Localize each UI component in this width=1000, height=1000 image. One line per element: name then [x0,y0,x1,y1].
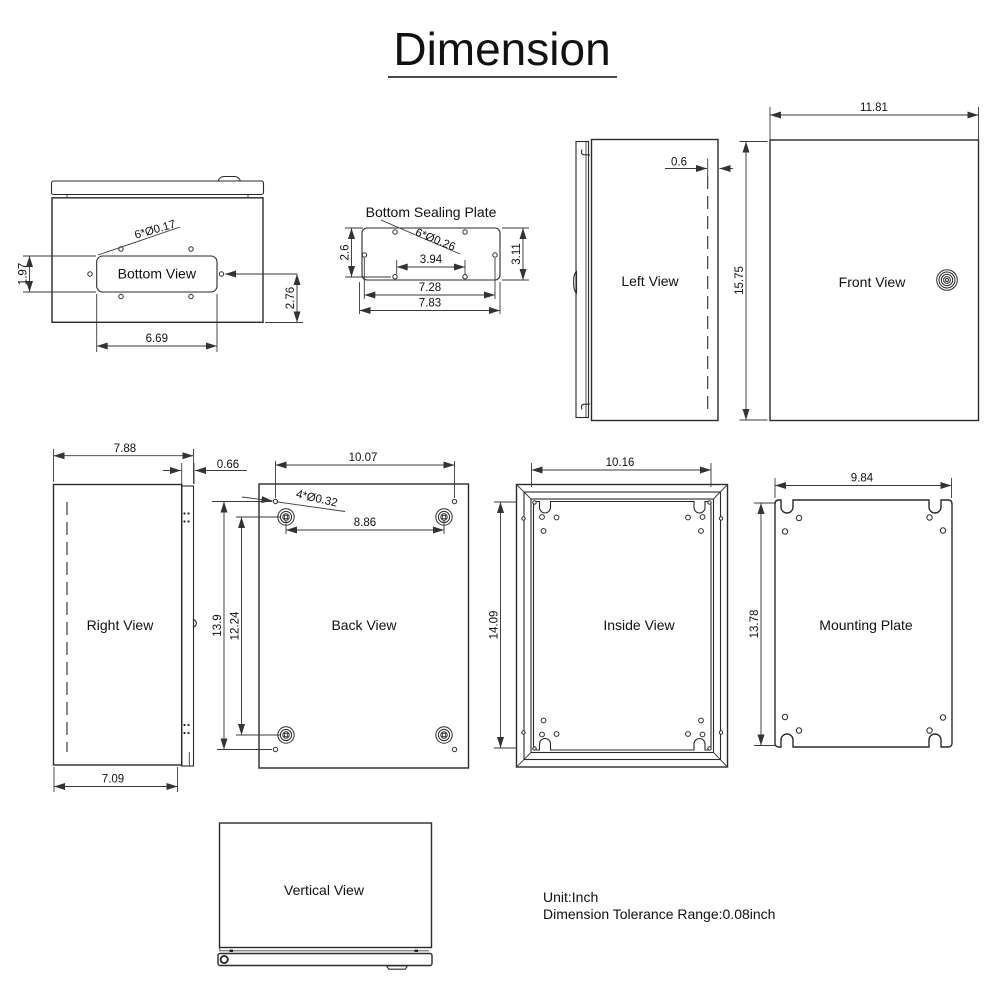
dim-10-07-label: 10.07 [349,452,378,464]
hinge-screw-dots [183,512,189,734]
vertical-view-label: Vertical View [284,882,365,898]
dim-9-84-label: 9.84 [851,473,874,485]
door-edge [52,181,264,195]
left-view: Left View 0.6 [574,140,733,421]
dim-15-75-label: 15.75 [734,266,746,295]
unit-note: Unit:Inch [543,889,598,905]
dim-13-78-label: 13.78 [749,610,761,639]
dim-0-66-label: 0.66 [217,459,239,471]
tolerance-note: Dimension Tolerance Range:0.08inch [543,906,775,922]
notes: Unit:Inch Dimension Tolerance Range:0.08… [543,889,775,922]
dim-8-86-label: 8.86 [354,517,376,529]
dim-14-09-label: 14.09 [489,611,501,640]
bottom-sealing-plate: Bottom Sealing Plate 6*Ø0.26 2.6 3.11 3.… [340,204,530,314]
hinge-tick-right [415,950,419,952]
title-block: Dimension [388,23,617,77]
mounting-plate: Mounting Plate 9.84 13.78 [749,473,952,748]
hinge-tick-left [230,950,234,952]
latch-bump [387,966,408,969]
inside-view: Inside View 10.16 14.09 [489,457,728,767]
back-view-label: Back View [331,617,397,633]
dim-10-16-label: 10.16 [606,457,635,469]
hole-note-label: 6*Ø0.17 [133,219,177,242]
dim-11-81-label: 11.81 [860,102,888,114]
bottom-view-label: Bottom View [118,266,197,282]
dim-2-6-label: 2.6 [340,245,352,261]
door-edge [218,954,432,966]
latch-bump [218,177,241,182]
hole-note-label: 6*Ø0.26 [413,227,457,254]
front-view: Front View 11.81 15.75 [734,102,979,421]
inside-view-label: Inside View [603,617,675,633]
bottom-sealing-plate-title: Bottom Sealing Plate [366,204,497,220]
dim-1-97-label: 1.97 [18,263,30,285]
hole-note-leader [242,497,273,501]
dim-7-28-label: 7.28 [419,282,441,294]
left-view-label: Left View [621,273,679,289]
dim-6-69-label: 6.69 [146,333,168,345]
mounting-plate-label: Mounting Plate [819,617,913,633]
dim-13-9-label: 13.9 [212,614,224,636]
hole-note-label: 4*Ø0.32 [295,488,339,509]
door-strip [576,142,589,418]
dim-0-66-ext [182,463,194,484]
dim-0-6-label: 0.6 [671,157,687,169]
dim-2-76-label: 2.76 [285,287,297,309]
door-strip [182,486,194,766]
dim-12-24-label: 12.24 [230,611,242,640]
dim-7-88-label: 7.88 [114,443,136,455]
bottom-view-outline [52,198,263,322]
vertical-view: Vertical View [218,823,432,969]
dim-3-94-label: 3.94 [420,254,443,266]
dim-7-09-label: 7.09 [102,774,124,786]
latch-bump [574,272,577,294]
hinge-barrel [221,956,228,963]
latch-bump [194,620,197,628]
front-view-label: Front View [839,274,907,290]
drawing-canvas: Dimension 6*Ø0.17 Bottom View 1.97 2.76 … [0,0,1000,1000]
dim-1-97-ext [23,256,96,292]
bottom-view: 6*Ø0.17 Bottom View 1.97 2.76 6.69 [18,177,304,353]
right-view-label: Right View [87,617,155,633]
back-view: Back View 4*Ø0.32 10.07 8.86 13.9 12.24 [212,452,469,768]
dim-3-11-label: 3.11 [511,243,523,265]
dimension-drawing: Dimension 6*Ø0.17 Bottom View 1.97 2.76 … [0,0,1000,1000]
page-title: Dimension [393,23,610,75]
lock-icon [937,270,958,291]
dim-7-83-label: 7.83 [419,298,441,310]
